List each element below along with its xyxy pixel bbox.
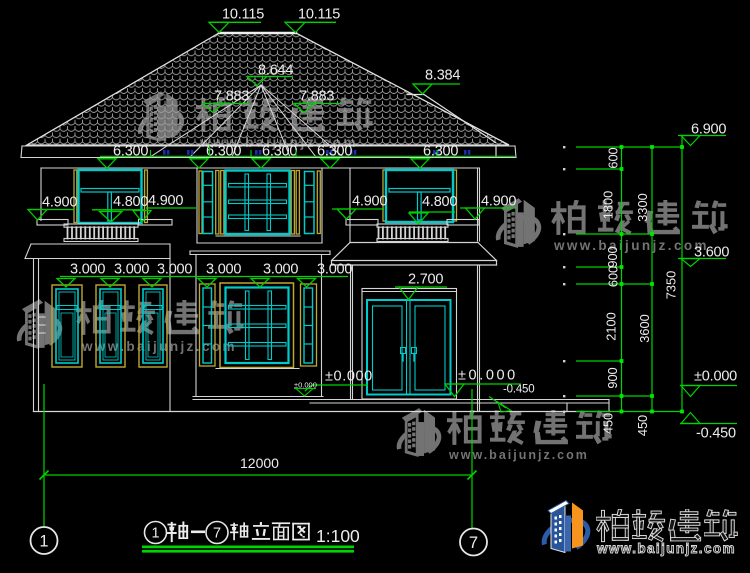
svg-text:±0.000: ±0.000 <box>694 369 737 385</box>
svg-text:www.baijunjz.com: www.baijunjz.com <box>448 448 589 462</box>
svg-text:±0.000: ±0.000 <box>458 368 518 384</box>
svg-text:450: 450 <box>635 415 650 436</box>
svg-text:4.900: 4.900 <box>148 193 183 209</box>
svg-text:8.384: 8.384 <box>425 68 460 84</box>
svg-text:2100: 2100 <box>604 312 619 340</box>
svg-text:www.baijunjz.com: www.baijunjz.com <box>553 238 709 253</box>
svg-text:7.883: 7.883 <box>299 89 334 105</box>
svg-text:4.900: 4.900 <box>352 194 387 210</box>
svg-text:3.000: 3.000 <box>157 262 192 278</box>
svg-text:7: 7 <box>213 526 221 542</box>
svg-text:1800: 1800 <box>601 191 616 219</box>
svg-text:1:100: 1:100 <box>316 526 360 546</box>
svg-text:±0.000: ±0.000 <box>325 369 373 385</box>
svg-text:3.000: 3.000 <box>206 262 241 278</box>
svg-text:7.883: 7.883 <box>214 89 249 105</box>
svg-text:6.300: 6.300 <box>113 143 148 159</box>
svg-text:900: 900 <box>605 367 620 388</box>
svg-text:3.000: 3.000 <box>114 262 149 278</box>
svg-text:3.000: 3.000 <box>70 262 105 278</box>
svg-text:600: 600 <box>606 147 621 168</box>
svg-text:10.115: 10.115 <box>298 7 340 23</box>
svg-text:6.300: 6.300 <box>423 143 458 159</box>
svg-text:3.000: 3.000 <box>317 262 352 278</box>
svg-text:10.115: 10.115 <box>222 7 264 23</box>
svg-text:6.300: 6.300 <box>262 143 297 159</box>
svg-text:7350: 7350 <box>664 271 679 299</box>
svg-text:6.300: 6.300 <box>206 143 241 159</box>
svg-text:-0.450: -0.450 <box>503 384 534 396</box>
svg-text:4.800: 4.800 <box>422 194 457 210</box>
svg-text:4.900: 4.900 <box>481 194 516 210</box>
svg-text:6.300: 6.300 <box>317 143 352 159</box>
svg-text:450: 450 <box>601 413 616 434</box>
svg-text:-0.450: -0.450 <box>696 426 736 442</box>
svg-text:900: 900 <box>605 246 620 267</box>
svg-text:600: 600 <box>606 266 621 287</box>
svg-text:7: 7 <box>469 534 478 552</box>
svg-text:12000: 12000 <box>240 455 279 471</box>
svg-text:www.baijunjz.com: www.baijunjz.com <box>81 339 237 354</box>
svg-text:2.700: 2.700 <box>408 272 443 288</box>
svg-text:3600: 3600 <box>637 314 652 342</box>
svg-text:www.baijunjz.com: www.baijunjz.com <box>596 541 736 556</box>
svg-text:4.800: 4.800 <box>113 194 148 210</box>
svg-text:3300: 3300 <box>635 193 650 221</box>
svg-text:4.900: 4.900 <box>42 195 77 211</box>
svg-text:1: 1 <box>39 533 48 551</box>
svg-text:1: 1 <box>151 526 159 542</box>
svg-text:3.000: 3.000 <box>263 262 298 278</box>
